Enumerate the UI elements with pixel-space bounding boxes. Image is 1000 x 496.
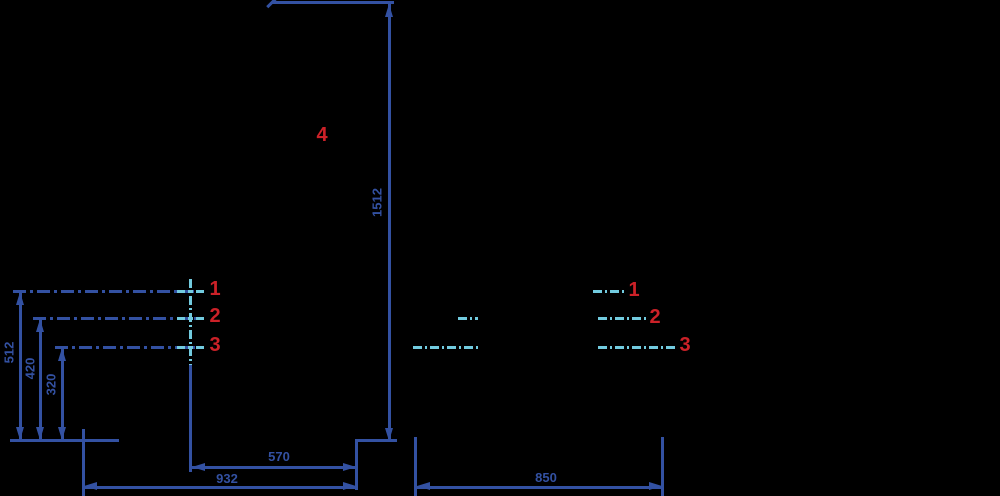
arrow-up-icon bbox=[16, 292, 24, 305]
marker-label-left-2: 2 bbox=[204, 305, 226, 327]
centerline-right-2 bbox=[598, 317, 646, 320]
marker-label-left-1: 1 bbox=[204, 278, 226, 300]
centerline-right-3 bbox=[598, 346, 677, 349]
extension-line-center bbox=[189, 365, 192, 472]
center-marker-1 bbox=[177, 290, 204, 293]
dim-text-height-3: 320 bbox=[44, 365, 59, 405]
arrow-left-icon bbox=[417, 482, 430, 490]
marker-label-right-3: 3 bbox=[674, 334, 696, 356]
arrow-right-icon bbox=[343, 463, 356, 471]
right-width-dim-line bbox=[417, 486, 662, 489]
overall-height-dim-line bbox=[388, 3, 391, 441]
inner-width-dim-line bbox=[192, 466, 356, 469]
overall-width-dim-line bbox=[84, 486, 356, 489]
technical-drawing-canvas: 1512 4 512 420 320 1 2 3 570 932 850 bbox=[0, 0, 1000, 496]
arrow-up-icon bbox=[36, 319, 44, 332]
centerline-mid-3 bbox=[413, 346, 478, 349]
top-corner-tick bbox=[266, 0, 277, 8]
baseline bbox=[10, 439, 119, 442]
arrow-up-icon bbox=[385, 4, 393, 17]
floor-line-segment bbox=[355, 439, 397, 442]
part-label-4: 4 bbox=[311, 124, 333, 146]
dim-text-height-1: 512 bbox=[2, 333, 17, 373]
centerline-left-1 bbox=[13, 290, 203, 293]
dim-text-right-width: 850 bbox=[526, 470, 566, 485]
dim-text-overall-width: 932 bbox=[207, 471, 247, 486]
marker-label-right-1: 1 bbox=[623, 279, 645, 301]
dim-text-overall-height: 1512 bbox=[370, 183, 385, 223]
centerline-mid-2 bbox=[458, 317, 478, 320]
top-extension-line bbox=[272, 1, 394, 4]
center-marker-3 bbox=[177, 346, 204, 349]
dim-text-inner-width: 570 bbox=[259, 449, 299, 464]
height-dim-line-2 bbox=[39, 319, 42, 440]
arrow-left-icon bbox=[192, 463, 205, 471]
arrow-right-icon bbox=[343, 482, 356, 490]
arrow-right-icon bbox=[649, 482, 662, 490]
marker-label-right-2: 2 bbox=[644, 306, 666, 328]
arrow-left-icon bbox=[84, 482, 97, 490]
center-marker-2 bbox=[177, 317, 204, 320]
dim-text-height-2: 420 bbox=[23, 349, 38, 389]
marker-label-left-3: 3 bbox=[204, 334, 226, 356]
centerline-right-1 bbox=[593, 290, 625, 293]
arrow-up-icon bbox=[58, 348, 66, 361]
